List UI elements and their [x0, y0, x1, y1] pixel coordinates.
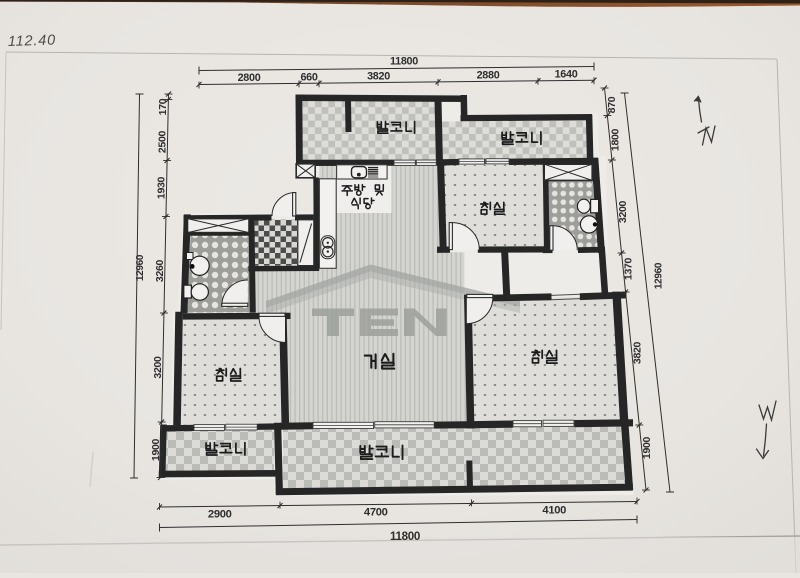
svg-text:1900: 1900 — [641, 436, 653, 459]
svg-text:12960: 12960 — [135, 254, 146, 281]
svg-text:170: 170 — [157, 98, 169, 115]
svg-text:2500: 2500 — [157, 130, 169, 153]
svg-text:4700: 4700 — [364, 507, 388, 519]
svg-text:870: 870 — [606, 96, 618, 113]
svg-text:3260: 3260 — [154, 259, 166, 282]
svg-text:12960: 12960 — [654, 262, 665, 289]
svg-text:1930: 1930 — [156, 176, 168, 199]
svg-text:1800: 1800 — [609, 128, 621, 151]
svg-text:2900: 2900 — [208, 508, 232, 520]
svg-text:1640: 1640 — [555, 69, 578, 81]
svg-text:1370: 1370 — [623, 257, 635, 280]
svg-text:3820: 3820 — [631, 341, 643, 364]
svg-text:2880: 2880 — [477, 69, 500, 81]
svg-text:4100: 4100 — [542, 504, 566, 516]
svg-text:3200: 3200 — [152, 356, 164, 379]
svg-text:2800: 2800 — [238, 72, 261, 84]
svg-text:11800: 11800 — [390, 530, 420, 543]
svg-text:112.40: 112.40 — [8, 32, 57, 50]
svg-text:3820: 3820 — [367, 71, 390, 83]
svg-text:3200: 3200 — [617, 200, 629, 223]
svg-text:11800: 11800 — [390, 56, 418, 68]
svg-text:1900: 1900 — [150, 438, 162, 461]
svg-text:660: 660 — [300, 71, 317, 83]
